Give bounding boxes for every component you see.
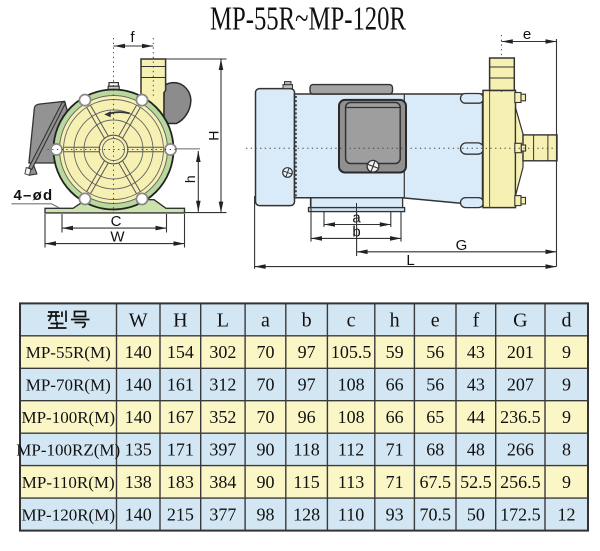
- svg-text:12: 12: [558, 504, 576, 524]
- svg-text:66: 66: [386, 407, 404, 427]
- svg-text:L: L: [406, 252, 414, 269]
- svg-text:70.5: 70.5: [419, 504, 451, 524]
- svg-text:MP-55R~MP-120R: MP-55R~MP-120R: [210, 1, 406, 38]
- svg-text:110: 110: [338, 504, 364, 524]
- svg-text:W: W: [110, 229, 125, 246]
- svg-text:C: C: [111, 213, 122, 230]
- svg-text:G: G: [513, 310, 527, 332]
- svg-text:113: 113: [338, 472, 364, 492]
- svg-text:140: 140: [125, 375, 152, 395]
- svg-text:171: 171: [167, 439, 194, 459]
- svg-text:302: 302: [209, 342, 236, 362]
- svg-text:h: h: [182, 175, 198, 183]
- svg-text:L: L: [217, 310, 229, 332]
- svg-text:43: 43: [467, 375, 485, 395]
- svg-text:352: 352: [209, 407, 236, 427]
- svg-text:MP-110R(M): MP-110R(M): [22, 473, 115, 492]
- svg-text:97: 97: [298, 342, 316, 362]
- svg-text:215: 215: [167, 504, 194, 524]
- svg-text:140: 140: [125, 342, 152, 362]
- svg-text:90: 90: [256, 472, 274, 492]
- svg-text:161: 161: [167, 375, 194, 395]
- svg-text:108: 108: [338, 407, 365, 427]
- svg-text:207: 207: [507, 375, 534, 395]
- svg-text:f: f: [473, 310, 480, 332]
- svg-text:a: a: [261, 310, 270, 332]
- svg-text:397: 397: [209, 439, 236, 459]
- svg-text:138: 138: [125, 472, 152, 492]
- svg-text:118: 118: [293, 439, 319, 459]
- svg-text:MP-100R(M): MP-100R(M): [21, 408, 115, 427]
- svg-text:d: d: [562, 310, 572, 332]
- svg-text:167: 167: [167, 407, 194, 427]
- svg-text:112: 112: [338, 439, 364, 459]
- svg-text:96: 96: [298, 407, 316, 427]
- svg-text:70: 70: [256, 375, 274, 395]
- svg-text:266: 266: [507, 439, 534, 459]
- svg-text:384: 384: [209, 472, 236, 492]
- svg-text:9: 9: [562, 472, 571, 492]
- svg-text:MP-55R(M): MP-55R(M): [26, 343, 111, 362]
- svg-text:48: 48: [467, 439, 485, 459]
- svg-text:256.5: 256.5: [500, 472, 541, 492]
- svg-text:71: 71: [386, 472, 404, 492]
- svg-text:377: 377: [209, 504, 236, 524]
- svg-text:128: 128: [293, 504, 320, 524]
- svg-text:G: G: [456, 237, 468, 254]
- svg-text:e: e: [431, 310, 440, 332]
- svg-text:70: 70: [256, 407, 274, 427]
- svg-text:90: 90: [256, 439, 274, 459]
- svg-text:71: 71: [386, 439, 404, 459]
- svg-text:H: H: [205, 131, 221, 141]
- svg-text:183: 183: [167, 472, 194, 492]
- svg-text:9: 9: [562, 375, 571, 395]
- svg-text:108: 108: [338, 375, 365, 395]
- svg-text:9: 9: [562, 407, 571, 427]
- svg-text:135: 135: [125, 439, 152, 459]
- svg-text:140: 140: [125, 504, 152, 524]
- svg-text:154: 154: [167, 342, 194, 362]
- svg-text:67.5: 67.5: [419, 472, 451, 492]
- svg-text:140: 140: [125, 407, 152, 427]
- svg-text:MP-100RZ(M): MP-100RZ(M): [16, 440, 120, 459]
- svg-text:105.5: 105.5: [331, 342, 372, 362]
- svg-text:b: b: [302, 310, 312, 332]
- svg-text:65: 65: [426, 407, 444, 427]
- svg-text:236.5: 236.5: [500, 407, 541, 427]
- svg-text:97: 97: [298, 375, 316, 395]
- svg-text:70: 70: [256, 342, 274, 362]
- svg-text:66: 66: [386, 375, 404, 395]
- svg-text:H: H: [173, 310, 187, 332]
- svg-text:e: e: [523, 26, 531, 43]
- svg-text:56: 56: [426, 375, 444, 395]
- svg-text:W: W: [129, 310, 148, 332]
- svg-text:201: 201: [507, 342, 534, 362]
- svg-text:115: 115: [293, 472, 319, 492]
- svg-text:172.5: 172.5: [500, 504, 541, 524]
- svg-text:98: 98: [256, 504, 274, 524]
- svg-text:59: 59: [386, 342, 404, 362]
- svg-text:312: 312: [209, 375, 236, 395]
- svg-text:68: 68: [426, 439, 444, 459]
- svg-text:93: 93: [386, 504, 404, 524]
- svg-text:43: 43: [467, 342, 485, 362]
- svg-text:56: 56: [426, 342, 444, 362]
- svg-text:8: 8: [562, 439, 571, 459]
- svg-text:MP-120R(M): MP-120R(M): [21, 505, 115, 524]
- svg-text:MP-70R(M): MP-70R(M): [26, 376, 111, 395]
- svg-text:9: 9: [562, 342, 571, 362]
- svg-text:h: h: [390, 310, 400, 332]
- svg-text:52.5: 52.5: [460, 472, 492, 492]
- svg-text:50: 50: [467, 504, 485, 524]
- svg-text:c: c: [347, 310, 356, 332]
- svg-text:44: 44: [467, 407, 485, 427]
- svg-text:4–ød: 4–ød: [14, 187, 54, 204]
